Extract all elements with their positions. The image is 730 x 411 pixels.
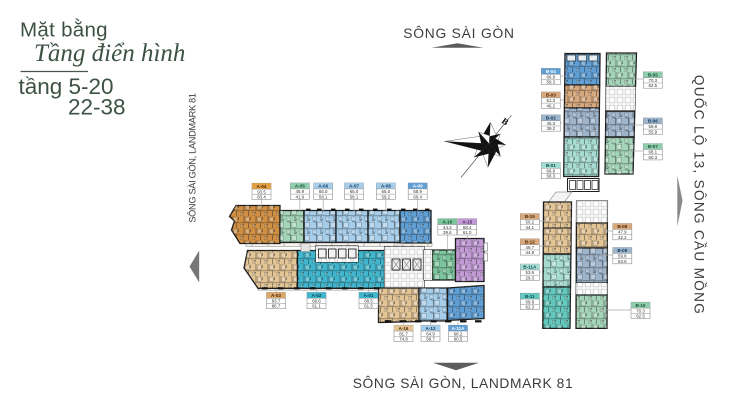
svg-text:58.1: 58.1	[350, 194, 359, 199]
svg-text:41.9: 41.9	[296, 194, 305, 199]
svg-text:A-16: A-16	[399, 326, 409, 331]
svg-text:60.5: 60.5	[454, 337, 463, 342]
svg-text:B: B	[500, 116, 511, 128]
svg-text:44.1: 44.1	[526, 225, 535, 230]
svg-text:62.3: 62.3	[526, 305, 535, 310]
svg-text:A-07: A-07	[349, 184, 359, 189]
svg-text:A-02: A-02	[312, 293, 322, 298]
svg-text:46.2: 46.2	[547, 103, 556, 108]
svg-text:Mặt bằng: Mặt bằng	[20, 19, 108, 42]
svg-text:B-15: B-15	[525, 214, 535, 219]
svg-text:B-08: B-08	[617, 224, 627, 229]
svg-text:A-01: A-01	[364, 293, 374, 298]
svg-text:58.7: 58.7	[426, 337, 435, 342]
svg-text:53.6: 53.6	[618, 259, 627, 264]
svg-text:83.4: 83.4	[257, 195, 266, 200]
svg-text:55.9: 55.9	[649, 129, 658, 134]
svg-text:B-01: B-01	[546, 163, 556, 168]
svg-text:A-04: A-04	[257, 184, 267, 189]
svg-text:A-12: A-12	[426, 326, 436, 331]
svg-text:B-07: B-07	[648, 144, 658, 149]
svg-text:A-05: A-05	[295, 184, 305, 189]
svg-text:44.8: 44.8	[526, 250, 535, 255]
svg-text:29.3: 29.3	[526, 275, 535, 280]
svg-text:SÔNG SÀI GÒN: SÔNG SÀI GÒN	[403, 25, 515, 41]
svg-text:B-09: B-09	[617, 248, 627, 253]
svg-text:39.6: 39.6	[443, 230, 452, 235]
svg-text:B-11A: B-11A	[523, 265, 537, 270]
svg-text:SÔNG SÀI GÒN, LANDMARK 81: SÔNG SÀI GÒN, LANDMARK 81	[188, 93, 198, 223]
svg-text:61.5: 61.5	[364, 304, 373, 309]
svg-text:Tầng điển hình: Tầng điển hình	[34, 40, 185, 67]
svg-text:B-06: B-06	[648, 119, 658, 124]
svg-text:86.7: 86.7	[272, 304, 281, 309]
svg-text:SÔNG SÀI GÒN, LANDMARK 81: SÔNG SÀI GÒN, LANDMARK 81	[353, 375, 573, 391]
svg-text:59.3: 59.3	[547, 80, 556, 85]
svg-text:A-09: A-09	[413, 184, 423, 189]
svg-text:A-03: A-03	[271, 293, 281, 298]
svg-text:B-12: B-12	[525, 239, 535, 244]
svg-text:A-10: A-10	[442, 219, 452, 224]
svg-text:60.4: 60.4	[413, 194, 422, 199]
svg-text:61.1: 61.1	[312, 304, 321, 309]
svg-text:61.0: 61.0	[463, 230, 472, 235]
svg-text:B-10: B-10	[636, 303, 646, 308]
svg-text:A-08: A-08	[381, 184, 391, 189]
svg-text:B-03: B-03	[546, 93, 556, 98]
svg-text:58.3: 58.3	[547, 174, 556, 179]
svg-text:B-02: B-02	[546, 116, 556, 121]
svg-text:QUỐC LỘ 13, SÔNG CẦU MỒNG: QUỐC LỘ 13, SÔNG CẦU MỒNG	[692, 75, 707, 315]
svg-text:74.8: 74.8	[399, 337, 408, 342]
svg-text:42.2: 42.2	[618, 235, 627, 240]
svg-text:62.5: 62.5	[636, 314, 645, 319]
svg-text:22-38: 22-38	[68, 95, 126, 120]
svg-text:62.5: 62.5	[649, 83, 658, 88]
svg-text:B-04: B-04	[546, 69, 556, 74]
svg-text:60.3: 60.3	[649, 155, 658, 160]
svg-text:A-06: A-06	[318, 184, 328, 189]
svg-text:A-15: A-15	[462, 219, 472, 224]
svg-text:B-05: B-05	[648, 73, 658, 78]
svg-text:A-11A: A-11A	[451, 326, 465, 331]
svg-text:39.2: 39.2	[547, 126, 556, 131]
svg-text:59.2: 59.2	[382, 194, 391, 199]
svg-text:58.1: 58.1	[319, 194, 328, 199]
svg-text:B-11: B-11	[525, 294, 535, 299]
